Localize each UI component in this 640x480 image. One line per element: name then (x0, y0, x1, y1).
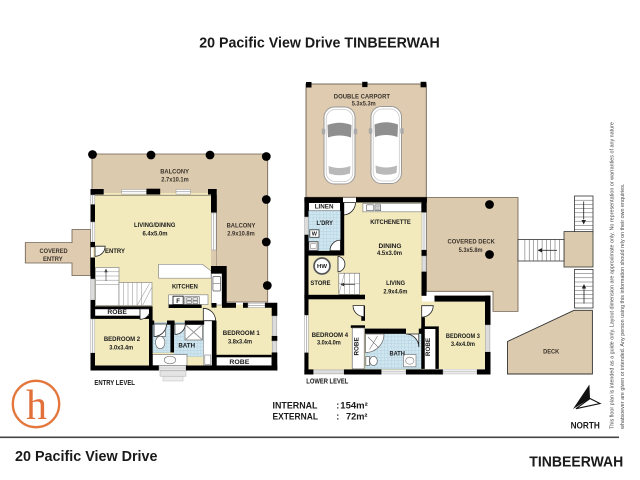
svg-text:ROBE: ROBE (353, 337, 360, 355)
svg-text:3.0x3.4m: 3.0x3.4m (109, 345, 133, 352)
svg-text:6.4x5.0m: 6.4x5.0m (143, 231, 168, 238)
svg-text:KITCHEN: KITCHEN (172, 284, 198, 291)
svg-text:BALCONY: BALCONY (227, 223, 256, 230)
svg-text:DECK: DECK (543, 348, 559, 355)
svg-text:DINING: DINING (379, 243, 402, 250)
svg-text:4.5x3.0m: 4.5x3.0m (377, 250, 402, 257)
svg-text:ROBE: ROBE (229, 359, 249, 366)
svg-text:2.9x10.8m: 2.9x10.8m (227, 231, 255, 238)
svg-text:3.0x4.0m: 3.0x4.0m (317, 340, 341, 347)
svg-text:EXTERNAL: EXTERNAL (273, 412, 319, 422)
svg-text:COVERED DECK: COVERED DECK (447, 239, 495, 246)
svg-text:F: F (176, 298, 180, 305)
svg-text:2.9x4.6m: 2.9x4.6m (383, 288, 407, 295)
svg-text:ENTRY: ENTRY (105, 248, 126, 255)
svg-text:NORTH: NORTH (571, 421, 600, 431)
svg-text:HW: HW (317, 264, 328, 270)
svg-text:DOUBLE CARPORT: DOUBLE CARPORT (334, 93, 390, 100)
svg-text::: : (336, 401, 339, 411)
svg-text:COVERED: COVERED (40, 248, 68, 255)
svg-text:20 Pacific View Drive TINBEERW: 20 Pacific View Drive TINBEERWAH (199, 36, 440, 52)
svg-text:LIVING/DINING: LIVING/DINING (134, 222, 175, 229)
svg-text:BALCONY: BALCONY (160, 168, 189, 175)
svg-text:ENTRY LEVEL: ENTRY LEVEL (94, 378, 135, 387)
svg-text:h: h (26, 383, 47, 429)
svg-text:LINEN: LINEN (315, 205, 334, 211)
svg-text:L'DRY: L'DRY (316, 220, 333, 227)
svg-text:KITCHENETTE: KITCHENETTE (370, 219, 411, 226)
svg-text:BATH: BATH (390, 351, 406, 358)
svg-text:BATH: BATH (178, 343, 195, 350)
svg-text:W: W (312, 232, 318, 238)
svg-text:5.3x5.3m: 5.3x5.3m (352, 100, 376, 107)
svg-text:154m²: 154m² (340, 401, 368, 411)
svg-text:20 Pacific View Drive: 20 Pacific View Drive (15, 449, 158, 465)
svg-text:ROBE: ROBE (425, 338, 432, 356)
svg-text:3.8x3.4m: 3.8x3.4m (228, 338, 252, 345)
svg-text:LOWER LEVEL: LOWER LEVEL (306, 377, 348, 386)
svg-text:This floor plan is intended as: This floor plan is intended as a guide o… (610, 122, 616, 429)
svg-text:2.7x10.1m: 2.7x10.1m (161, 176, 189, 183)
svg-text:whatsoever are given or intend: whatsoever are given or intended. Any pe… (620, 184, 626, 430)
svg-text:5.3x5.8m: 5.3x5.8m (459, 247, 483, 254)
svg-text:BEDROOM 2: BEDROOM 2 (104, 336, 141, 343)
svg-text:INTERNAL: INTERNAL (273, 401, 318, 411)
svg-text:ROBE: ROBE (107, 309, 127, 316)
svg-text:STORE: STORE (310, 280, 331, 287)
svg-text:BEDROOM 1: BEDROOM 1 (223, 330, 260, 337)
svg-text:LIVING: LIVING (386, 280, 405, 287)
svg-text:BEDROOM 3: BEDROOM 3 (446, 333, 480, 340)
svg-text:3.4x4.0m: 3.4x4.0m (451, 341, 475, 348)
svg-text:TINBEERWAH: TINBEERWAH (529, 455, 623, 471)
svg-text:72m²: 72m² (346, 412, 368, 422)
svg-text:ENTRY: ENTRY (43, 256, 63, 263)
svg-text:BEDROOM 4: BEDROOM 4 (312, 332, 349, 339)
svg-text::: : (336, 412, 339, 422)
